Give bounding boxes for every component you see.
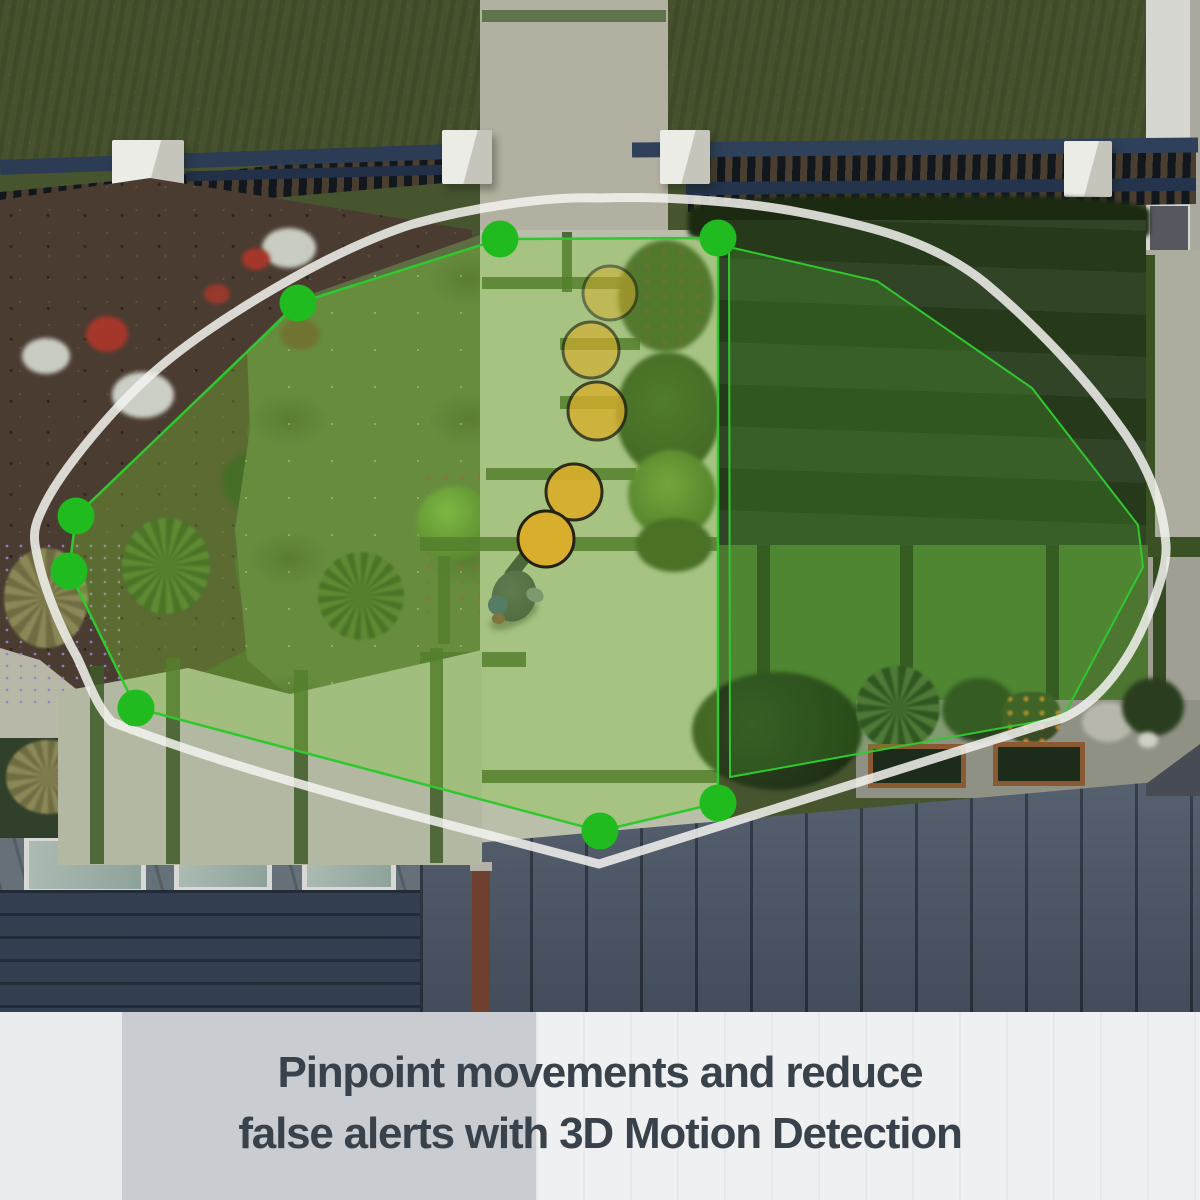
red-flower-bush xyxy=(622,244,710,348)
paver-joint xyxy=(430,648,443,863)
rock xyxy=(1138,732,1158,748)
caption-line-2: false alerts with 3D Motion Detection xyxy=(0,1103,1200,1164)
paver-joint xyxy=(482,277,640,289)
fence-post xyxy=(1064,141,1112,197)
lawn-top-left xyxy=(0,0,482,160)
fence-siding xyxy=(0,890,420,1012)
caption: Pinpoint movements and reduce false aler… xyxy=(0,1042,1200,1164)
fence-post xyxy=(442,130,492,184)
lawn-gap xyxy=(1046,545,1059,709)
red-flowers xyxy=(86,316,128,352)
fence-post xyxy=(660,130,710,184)
grass-tuft xyxy=(4,548,88,648)
paver-joint xyxy=(294,670,308,864)
lawn-right-dark xyxy=(718,220,1146,552)
paver-joint xyxy=(486,468,636,480)
building-wall-edge xyxy=(1190,0,1200,262)
walkway-top xyxy=(480,0,668,242)
planter-box xyxy=(993,742,1085,786)
white-flowers xyxy=(22,338,70,374)
wood-post xyxy=(472,866,490,1012)
small-bush xyxy=(636,518,712,572)
brown-patch xyxy=(280,318,320,350)
paver-joint xyxy=(90,666,104,864)
orange-flowers xyxy=(1002,692,1060,742)
person-shoe xyxy=(492,613,505,624)
paver-joint xyxy=(166,658,180,864)
paver-joint xyxy=(482,770,718,783)
paver-joint xyxy=(438,556,450,644)
palm-plant xyxy=(856,666,940,750)
planter-box xyxy=(868,744,966,788)
red-flowers xyxy=(242,248,270,270)
marketing-image: Pinpoint movements and reduce false aler… xyxy=(0,0,1200,1200)
person-head xyxy=(488,595,508,615)
ornamental-grass xyxy=(122,518,210,614)
grass-strip xyxy=(1142,537,1200,557)
white-flowers xyxy=(112,372,174,418)
ornamental-grass xyxy=(318,552,404,640)
white-flowers xyxy=(262,228,316,268)
caption-line-1: Pinpoint movements and reduce xyxy=(0,1042,1200,1103)
paver-joint xyxy=(562,232,572,292)
paver-joint xyxy=(560,338,640,350)
walkway-joint xyxy=(482,10,666,22)
red-flowers xyxy=(204,284,230,304)
bush xyxy=(1122,678,1184,736)
lawn-top-right xyxy=(664,0,1150,152)
bush-cluster xyxy=(692,672,862,790)
